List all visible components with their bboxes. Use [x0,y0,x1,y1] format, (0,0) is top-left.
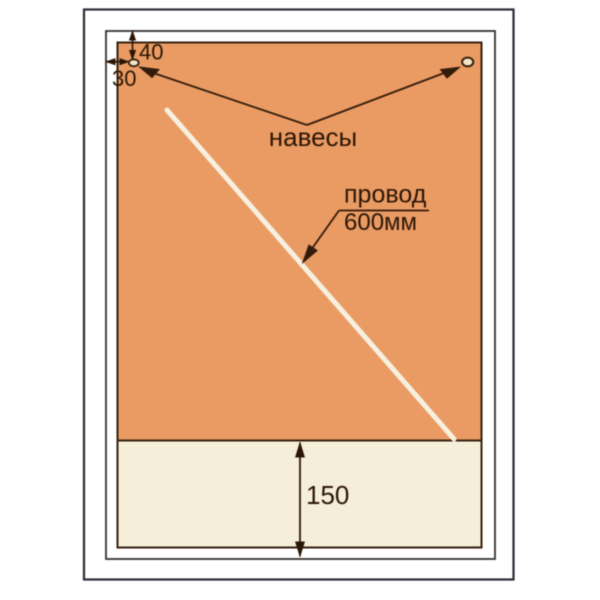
svg-text:150: 150 [306,480,349,510]
svg-text:провод: провод [344,181,427,209]
svg-text:600мм: 600мм [344,209,417,236]
svg-text:40: 40 [139,40,163,65]
svg-text:навесы: навесы [269,122,358,152]
svg-text:30: 30 [112,66,136,91]
